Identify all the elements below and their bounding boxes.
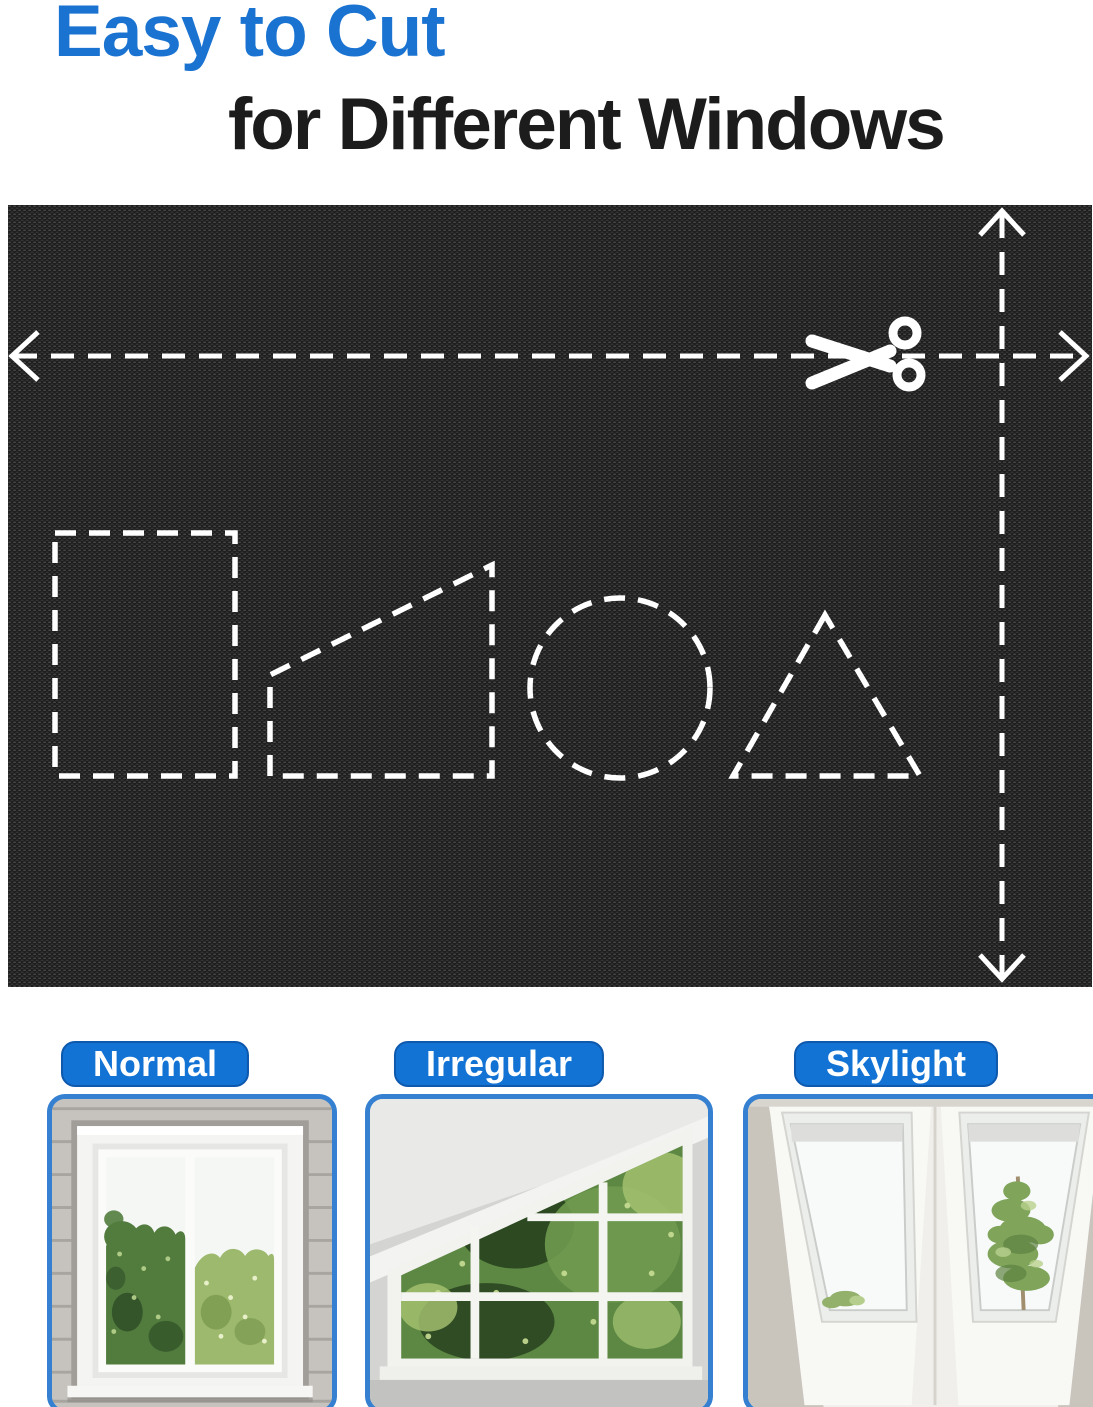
window-type-label-normal: Normal: [61, 1041, 249, 1087]
fabric-swatch: [8, 205, 1092, 987]
rectangle-outline: [55, 533, 235, 776]
window-type-label-skylight: Skylight: [794, 1041, 998, 1087]
page-title: Easy to Cut: [54, 0, 445, 68]
card-irregular-window: [365, 1094, 713, 1407]
circle-outline: [530, 598, 710, 778]
left-pane-bush: [104, 1210, 185, 1364]
skylight-window-photo: [748, 1099, 1093, 1407]
cut-guides: [8, 205, 1092, 987]
cut-shape-outlines: [55, 533, 920, 778]
card-normal-window: [47, 1094, 337, 1407]
vertical-cut-line: [980, 211, 1024, 979]
product-image: Easy to Cut for Different Windows: [0, 0, 1093, 1407]
label-text: Irregular: [426, 1043, 572, 1084]
right-pane-bush: [195, 1249, 274, 1365]
page-subtitle: for Different Windows: [228, 88, 944, 161]
irregular-window-photo: [370, 1099, 708, 1407]
label-text: Normal: [93, 1043, 217, 1084]
triangle-outline: [733, 615, 920, 776]
normal-window-photo: [52, 1099, 332, 1407]
trapezoid-outline: [270, 565, 492, 776]
window-type-label-irregular: Irregular: [394, 1041, 604, 1087]
card-skylight-window: [743, 1094, 1093, 1407]
label-text: Skylight: [826, 1043, 966, 1084]
